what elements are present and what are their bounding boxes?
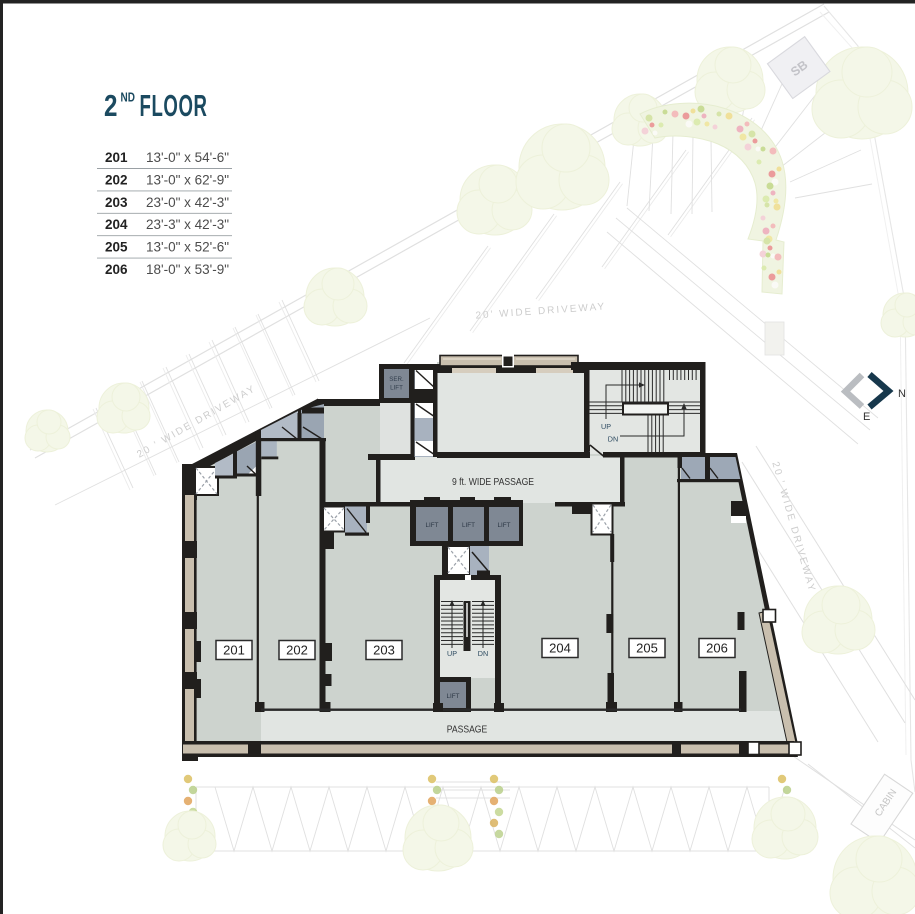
svg-text:2: 2: [104, 88, 117, 123]
svg-text:203: 203: [105, 195, 128, 210]
svg-text:LIFT: LIFT: [390, 385, 403, 392]
svg-text:LIFT: LIFT: [426, 522, 439, 529]
svg-text:UP: UP: [447, 649, 457, 658]
svg-text:DN: DN: [478, 649, 488, 658]
svg-text:202: 202: [105, 172, 128, 187]
svg-text:201: 201: [223, 643, 245, 658]
svg-text:N: N: [898, 388, 906, 400]
svg-text:PASSAGE: PASSAGE: [447, 724, 487, 736]
svg-text:205: 205: [636, 641, 658, 656]
svg-text:SER.: SER.: [389, 376, 404, 383]
svg-text:13'-0" x 52'-6": 13'-0" x 52'-6": [146, 240, 229, 255]
svg-text:206: 206: [706, 641, 728, 656]
svg-text:LIFT: LIFT: [447, 693, 460, 700]
svg-text:ND: ND: [121, 92, 135, 105]
svg-text:20’ WIDE DRIVEWAY: 20’ WIDE DRIVEWAY: [475, 301, 606, 321]
svg-text:13'-0" x 62'-9": 13'-0" x 62'-9": [146, 172, 229, 187]
svg-text:LIFT: LIFT: [462, 522, 475, 529]
svg-text:E: E: [863, 411, 870, 423]
svg-text:18'-0" x 53'-9": 18'-0" x 53'-9": [146, 262, 229, 277]
svg-text:23'-0" x 42'-3": 23'-0" x 42'-3": [146, 195, 229, 210]
svg-text:UP: UP: [601, 422, 611, 431]
svg-text:202: 202: [286, 643, 308, 658]
svg-text:20 ’ WIDE DRIVEWAY: 20 ’ WIDE DRIVEWAY: [769, 461, 817, 594]
svg-text:205: 205: [105, 240, 128, 255]
svg-text:13'-0" x 54'-6": 13'-0" x 54'-6": [146, 150, 229, 165]
svg-text:FLOOR: FLOOR: [140, 89, 208, 123]
svg-text:DN: DN: [608, 435, 618, 444]
svg-text:201: 201: [105, 150, 128, 165]
svg-text:204: 204: [105, 217, 128, 232]
svg-text:203: 203: [373, 643, 395, 658]
svg-text:23'-3" x 42'-3": 23'-3" x 42'-3": [146, 217, 229, 232]
svg-text:LIFT: LIFT: [498, 522, 511, 529]
svg-text:206: 206: [105, 262, 128, 277]
svg-text:204: 204: [549, 641, 571, 656]
svg-text:9 ft. WIDE PASSAGE: 9 ft. WIDE PASSAGE: [452, 476, 534, 488]
